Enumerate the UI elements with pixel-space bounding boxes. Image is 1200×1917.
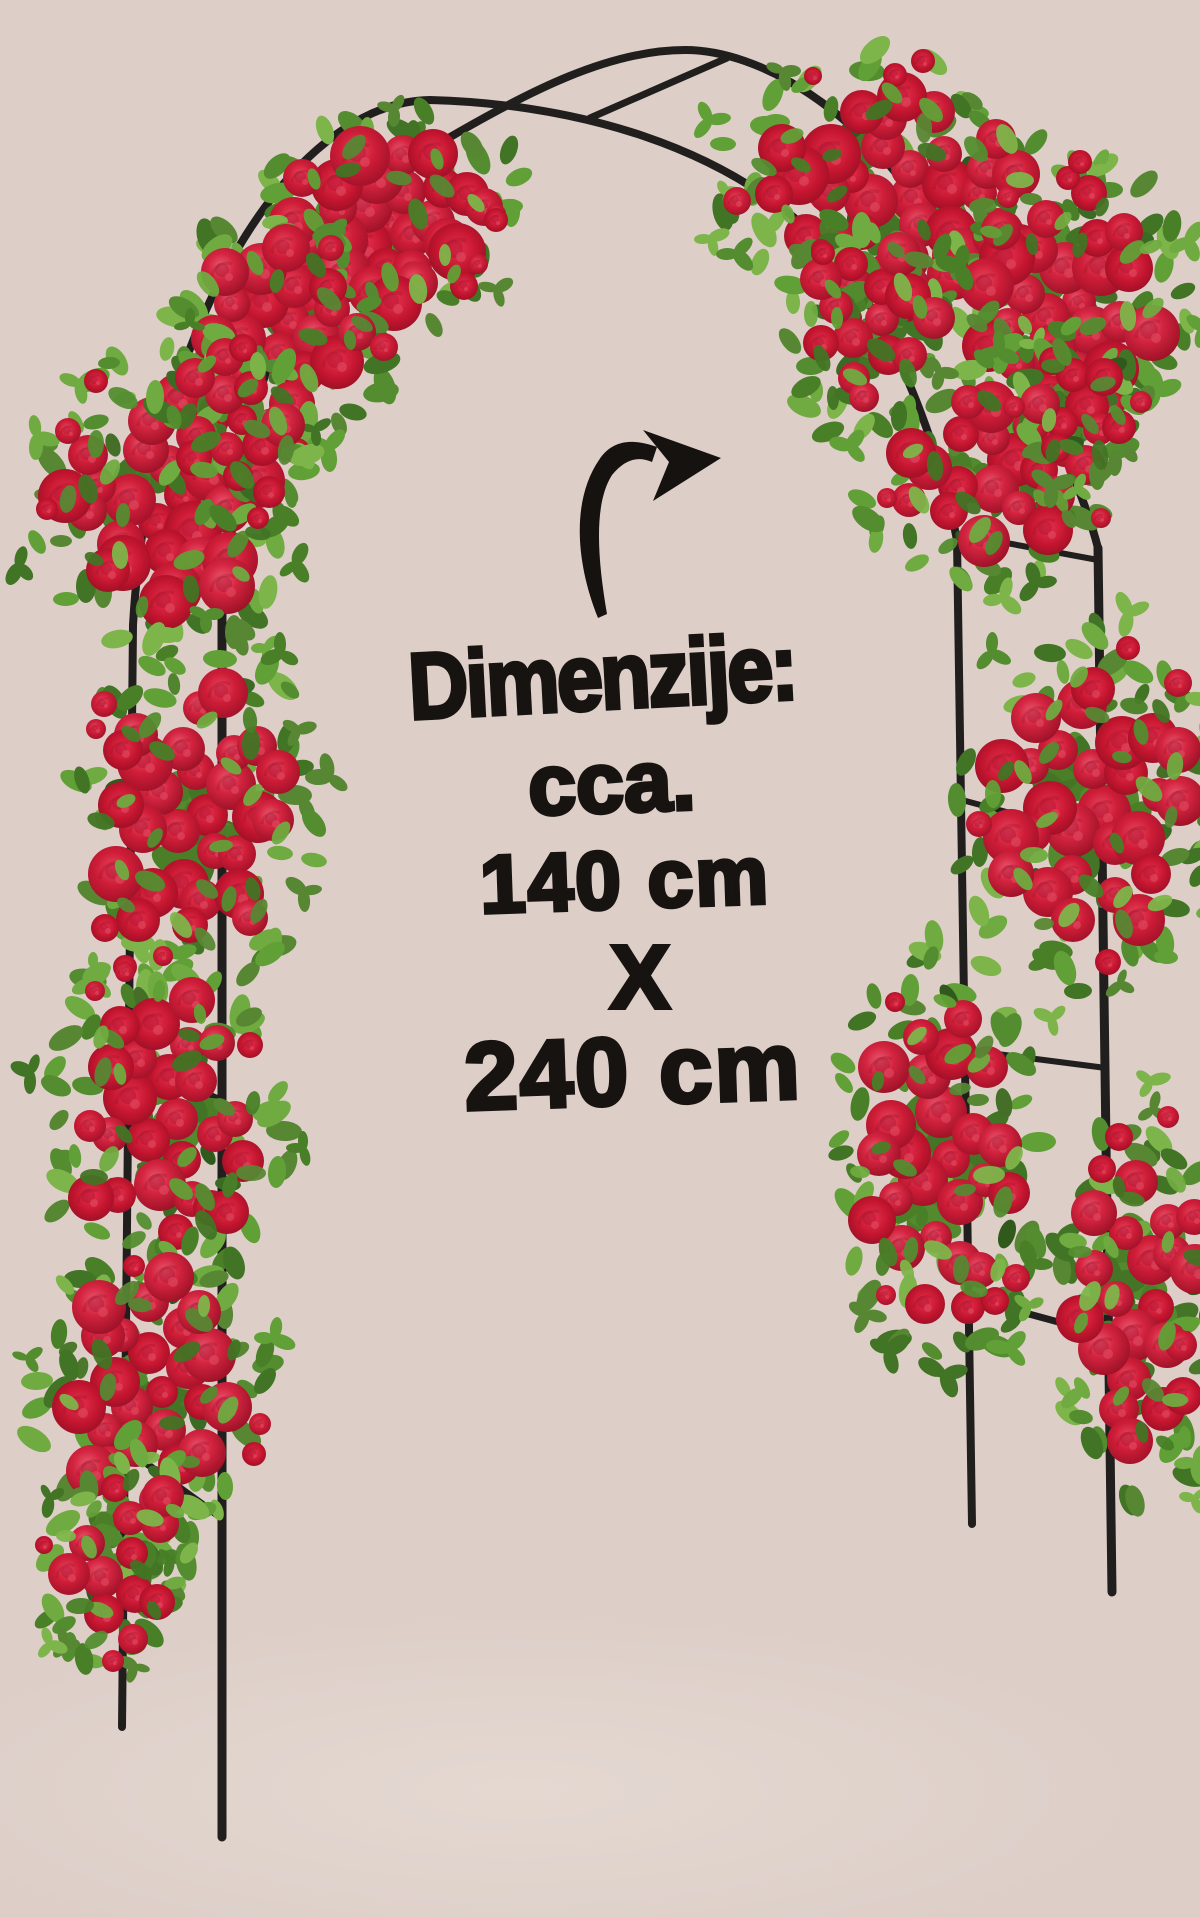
svg-text:240 cm: 240 cm [462, 1012, 803, 1131]
svg-text:X: X [610, 928, 670, 1028]
svg-text:cca.: cca. [526, 732, 697, 834]
svg-text:140 cm: 140 cm [478, 830, 771, 931]
svg-text:Dimenzije:: Dimenzije: [406, 614, 798, 739]
